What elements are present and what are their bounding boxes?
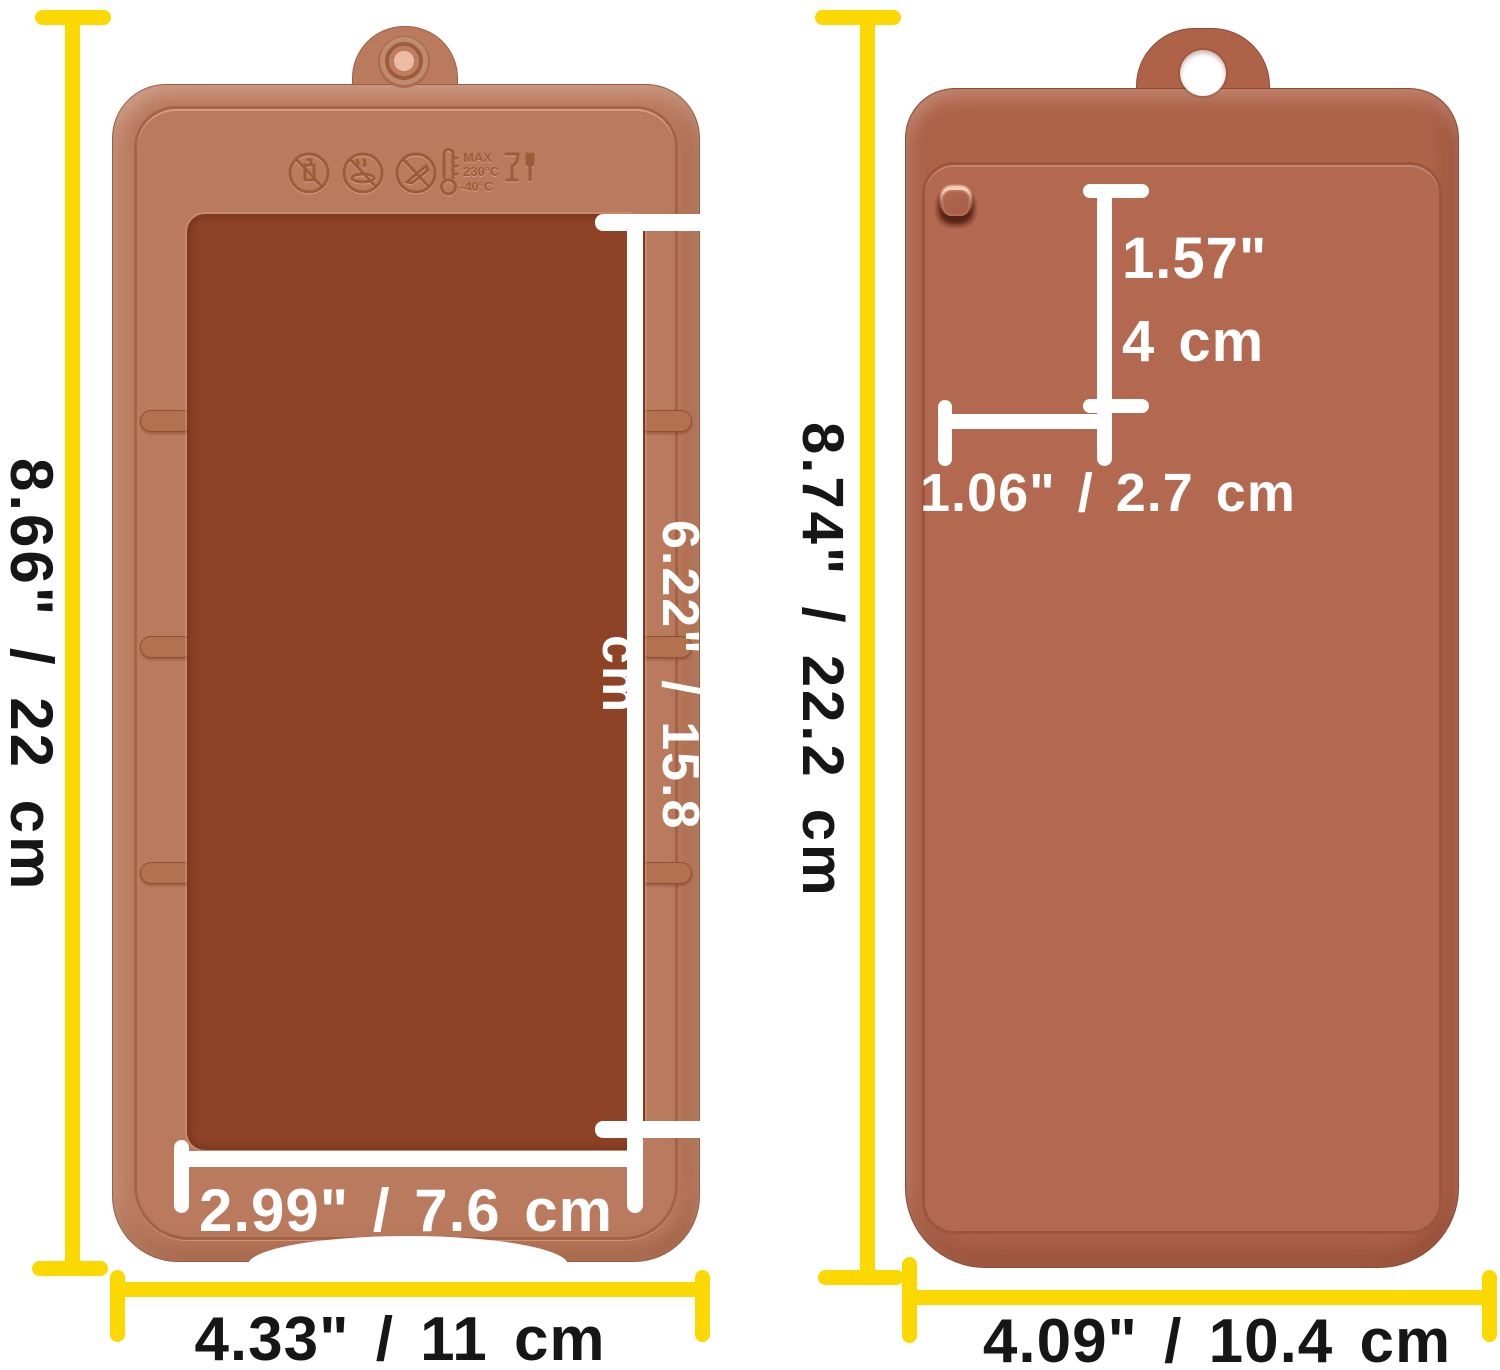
left-cavity-width-dim-line bbox=[181, 1151, 643, 1167]
right-mold-hanging-hole bbox=[1180, 50, 1226, 96]
mold-side-tab bbox=[140, 410, 194, 432]
right-mold-height-label: 8.74" / 22.2 cm bbox=[792, 400, 856, 920]
left-bar-grid bbox=[187, 214, 645, 1150]
mold-side-tab bbox=[140, 862, 194, 884]
left-mold-hanging-hole-grommet bbox=[378, 36, 430, 88]
right-width-dim-line bbox=[908, 1290, 1490, 1305]
food-safety-icons: MAX 230°C -40°C bbox=[285, 146, 535, 198]
left-mold-bar-cavity bbox=[187, 214, 645, 1150]
left-height-dim-cap-top bbox=[35, 10, 111, 25]
left-cavity-height-dim-cap-top bbox=[595, 214, 717, 231]
left-height-dim-line bbox=[65, 12, 80, 1276]
right-mold-width-label: 4.09" / 10.4 cm bbox=[940, 1306, 1494, 1370]
mold-side-tab bbox=[638, 410, 692, 432]
left-mold-height-label: 8.66" / 22 cm bbox=[2, 425, 66, 925]
left-width-dim-tick-right bbox=[695, 1270, 710, 1342]
food-safe-glass-fork-icon bbox=[506, 154, 533, 180]
mini-bar-square-grid bbox=[942, 190, 970, 216]
left-cavity-height-label: 6.22" / 15.8 cm bbox=[648, 470, 710, 880]
emboss-temp-high: 230°C bbox=[463, 164, 500, 179]
minibar-height-dim-cap-bottom bbox=[1083, 399, 1149, 413]
minibar-height-label-inches: 1.57" bbox=[1122, 225, 1267, 292]
minibar-height-dim-cap-top bbox=[1083, 184, 1149, 198]
left-mold-width-label: 4.33" / 11 cm bbox=[120, 1304, 680, 1370]
minibar-height-label-cm: 4 cm bbox=[1122, 308, 1264, 375]
left-cavity-height-dim-line bbox=[627, 218, 643, 1213]
emboss-temp-low: -40°C bbox=[460, 179, 494, 194]
minibar-width-dim-tick-left bbox=[938, 400, 952, 466]
left-width-dim-line bbox=[116, 1282, 704, 1297]
minibar-width-label: 1.06" / 2.7 cm bbox=[920, 462, 1288, 524]
right-height-dim-line bbox=[860, 12, 875, 1282]
left-cavity-height-dim-cap-bottom bbox=[595, 1121, 717, 1138]
chocolate-mold-dimension-diagram: MAX 230°C -40°C 8.66" / 22 cm 6.22" / 15… bbox=[0, 0, 1500, 1370]
right-width-dim-tick-left bbox=[902, 1257, 917, 1343]
mold-side-tab bbox=[140, 636, 194, 658]
right-height-dim-cap-bottom bbox=[818, 1270, 904, 1285]
minibar-width-dim-line bbox=[944, 414, 1105, 429]
left-height-dim-cap-bottom bbox=[32, 1261, 108, 1276]
mini-bar-cavity bbox=[942, 190, 970, 216]
thermometer-icon bbox=[441, 150, 457, 194]
emboss-max-label: MAX bbox=[463, 150, 492, 165]
left-cavity-width-label: 2.99" / 7.6 cm bbox=[176, 1176, 636, 1245]
right-height-dim-cap-top bbox=[815, 10, 901, 25]
